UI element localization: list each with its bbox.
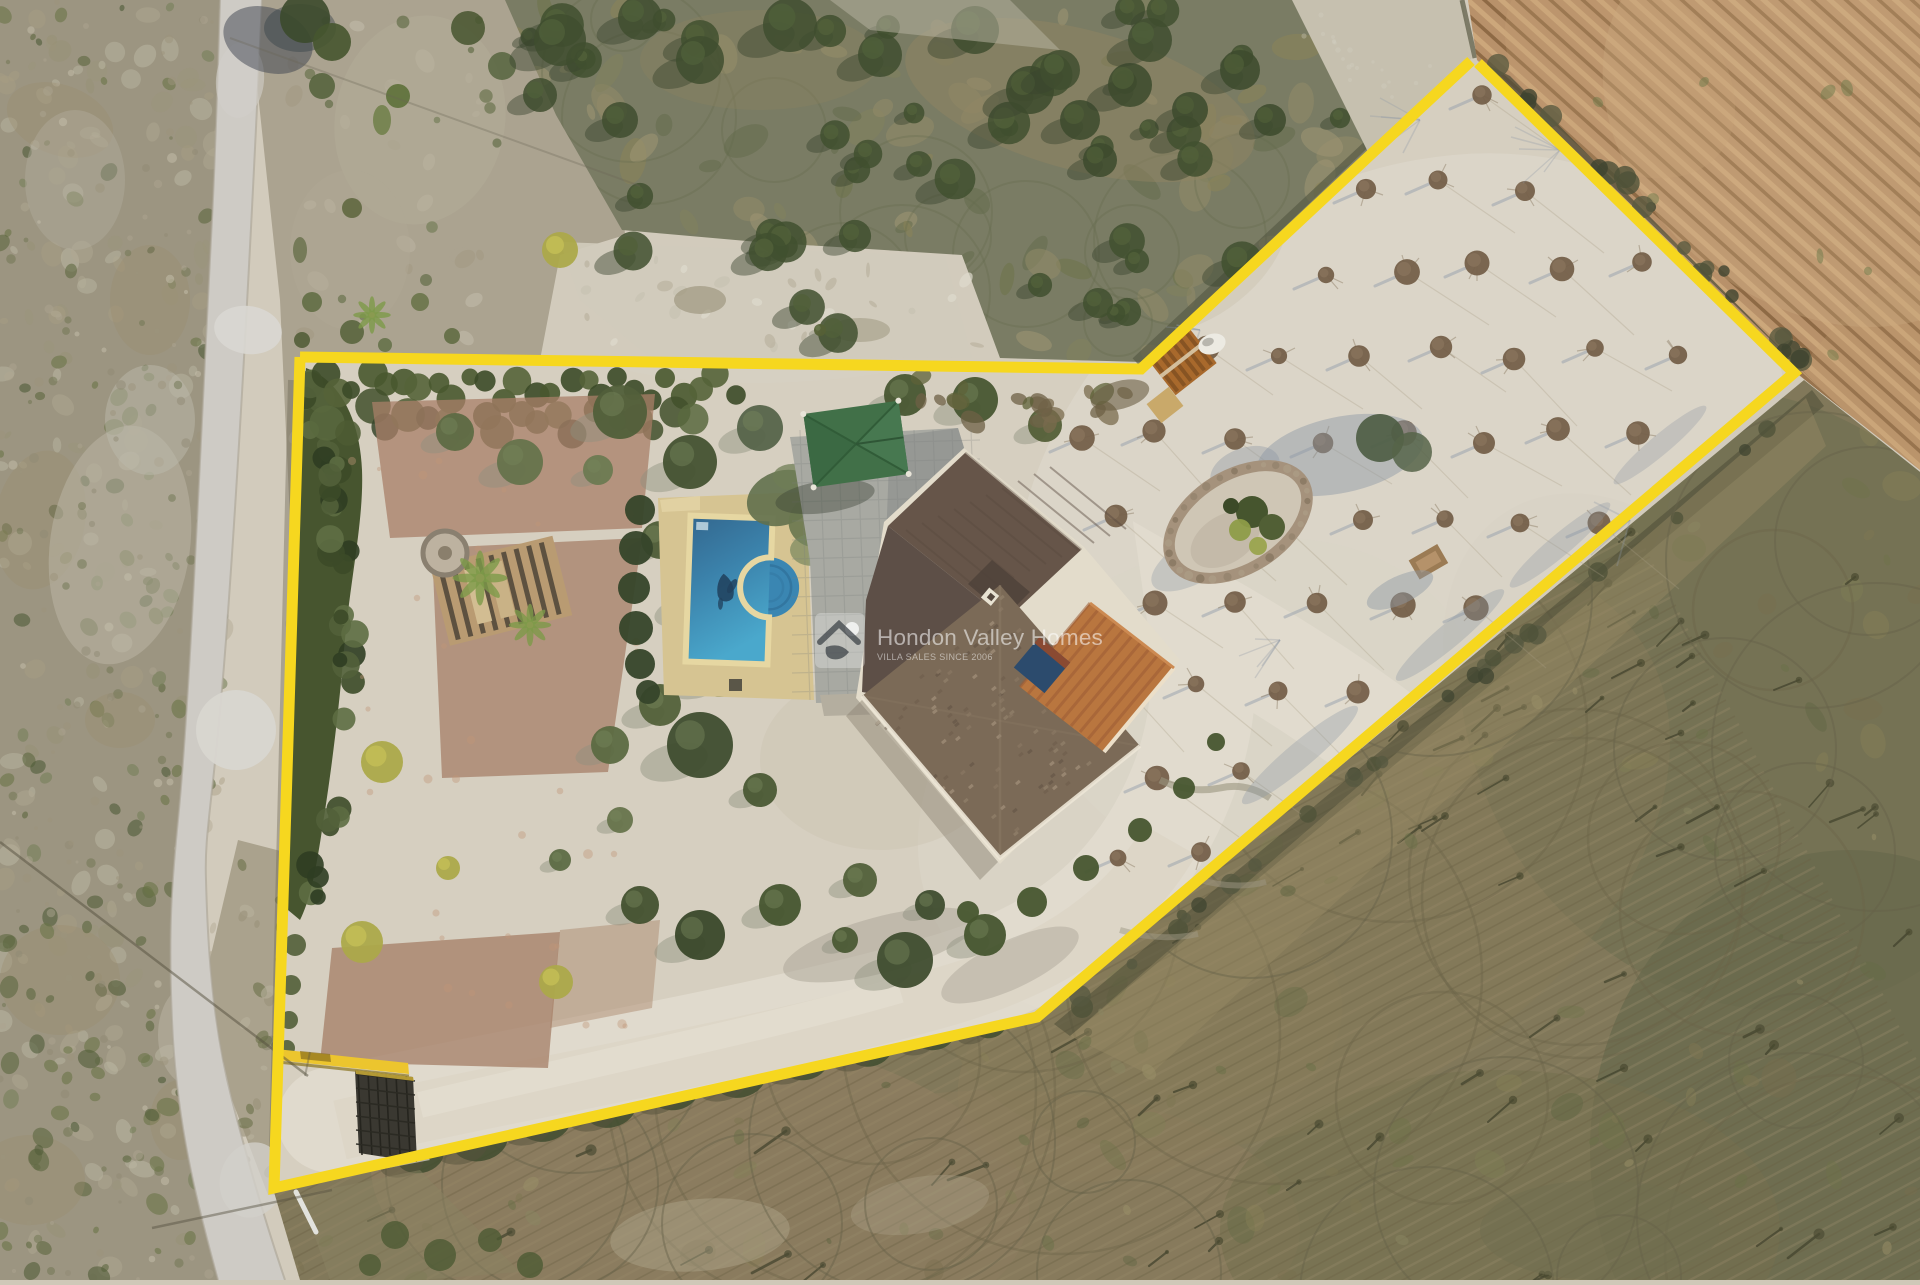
svg-text:VILLA SALES SINCE 2006: VILLA SALES SINCE 2006 [877, 652, 993, 662]
svg-text:Hondon Valley Homes: Hondon Valley Homes [877, 625, 1103, 650]
